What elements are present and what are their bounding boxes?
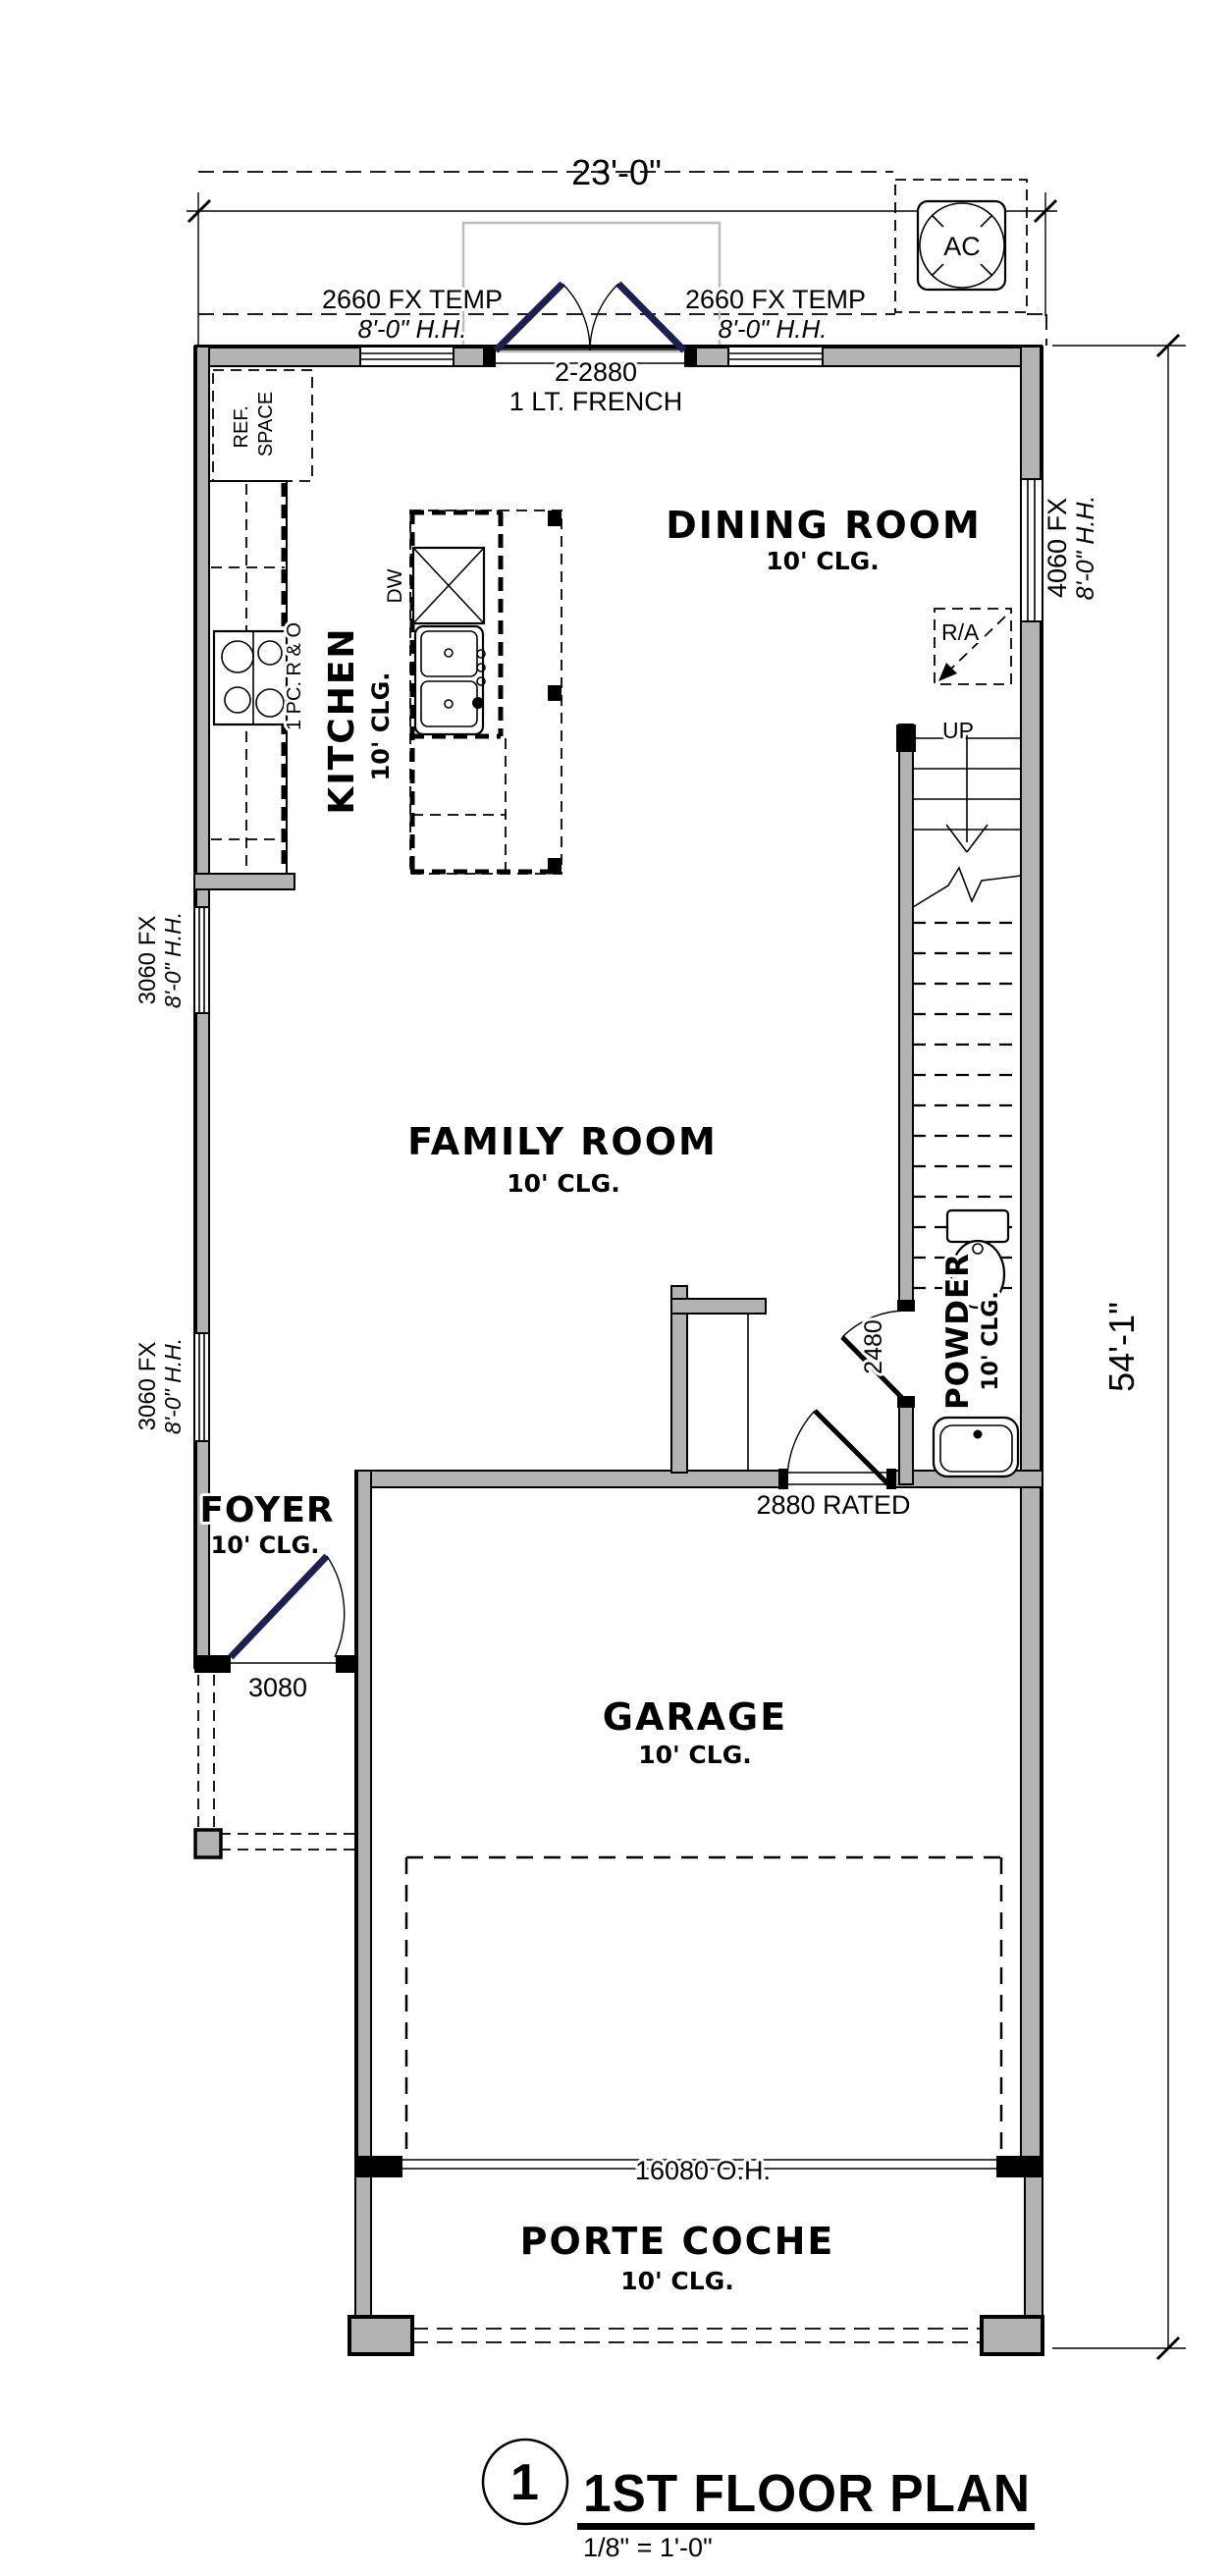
stairs (913, 726, 1021, 1288)
window-left-upper-3060 (194, 907, 209, 1013)
wall-porte-left (355, 2175, 371, 2319)
callout-french-door-type: 1 LT. FRENCH (509, 387, 683, 416)
dimension-right: 54'-1" (1052, 335, 1186, 2359)
callout-window-left-upper: 3060 FX (134, 916, 161, 1005)
wall-porte-right (1025, 2175, 1043, 2319)
wall-niche-top (671, 1299, 766, 1314)
stair-break-line (913, 868, 1021, 907)
callout-french-door-size: 2-2880 (555, 357, 637, 387)
front-door (231, 1556, 345, 1657)
sheet-number: 1 (510, 2454, 540, 2511)
wall-right (1021, 347, 1043, 479)
window-top-right (728, 347, 823, 366)
callout-window-left-upper-head: 8'-0" H.H. (160, 912, 186, 1008)
garage-door-jamb (886, 1469, 896, 1489)
front-door-jamb (336, 1655, 356, 1673)
garage-ceiling-dashed (406, 1857, 1001, 2156)
ref-space-line1: REF. (231, 405, 252, 448)
callout-front-door: 3080 (248, 1673, 307, 1702)
return-air-arrow (938, 663, 957, 681)
dishwasher-label: DW (384, 568, 406, 603)
porch-post (195, 1830, 221, 1857)
room-label-powder: POWDER (940, 1253, 976, 1410)
room-clg-garage: 10' CLG. (638, 1741, 751, 1769)
doors (231, 284, 906, 1657)
porte-coche-open-edge (349, 2317, 1043, 2354)
floor-plan-drawing: 23'-0" 54'-1" AC (0, 0, 1230, 2576)
dishwasher-icon (413, 548, 484, 623)
callout-window-left-lower: 3060 FX (134, 1342, 161, 1431)
ac-label: AC (943, 232, 981, 261)
callout-window-top-right: 2660 FX TEMP (685, 285, 866, 314)
front-door-jamb (194, 1655, 231, 1673)
wall-top (201, 347, 360, 366)
callout-overhead-door: 16080 O.H. (635, 2156, 771, 2185)
island-post (548, 510, 562, 526)
room-clg-family: 10' CLG. (507, 1169, 619, 1198)
french-doors (496, 284, 684, 350)
ref-space-label: REF. SPACE (231, 392, 277, 456)
return-air-label: R/A (941, 619, 980, 645)
range-label: 1 PC. R & O (284, 622, 305, 730)
sheet-title: 1ST FLOOR PLAN (583, 2464, 1031, 2523)
wall-top (823, 347, 1043, 366)
wall-right (1021, 621, 1043, 2175)
room-clg-kitchen: 10' CLG. (367, 672, 395, 781)
stairs-up-label: UP (942, 718, 974, 743)
powder-sink-icon (934, 1418, 1018, 1476)
island-post (548, 858, 562, 874)
powder-door-jamb (897, 1300, 915, 1312)
room-clg-porte-coche: 10' CLG. (620, 2267, 733, 2295)
overall-depth-dim: 54'-1" (1101, 1302, 1142, 1392)
callout-window-right: 4060 FX (1043, 498, 1072, 598)
room-clg-dining: 10' CLG. (766, 547, 879, 575)
room-label-garage: GARAGE (603, 1695, 787, 1739)
callout-window-top-right-head: 8'-0" H.H. (719, 314, 828, 344)
room-clg-foyer: 10' CLG. (211, 1531, 320, 1559)
porte-post (982, 2317, 1043, 2354)
kitchen-sink-icon (415, 626, 485, 734)
window-right-4060 (1021, 479, 1043, 621)
wall-top (696, 347, 728, 366)
porte-post (349, 2317, 412, 2354)
wall-powder-left (899, 1398, 913, 1484)
room-label-dining: DINING ROOM (666, 504, 982, 547)
room-label-porte-coche: PORTE COCHE (520, 2220, 835, 2263)
callout-window-top-left-head: 8'-0" H.H. (358, 314, 467, 344)
callout-garage-entry-door: 2880 RATED (756, 1490, 910, 1520)
room-label-kitchen: KITCHEN (322, 626, 362, 814)
range-icon (214, 631, 287, 724)
callout-powder-door: 2480 (860, 1319, 887, 1374)
wall-top (454, 347, 484, 366)
ref-space-line2: SPACE (255, 392, 277, 456)
kitchen-island (410, 510, 562, 874)
room-label-foyer: FOYER (199, 1490, 334, 1530)
callout-window-left-lower-head: 8'-0" H.H. (160, 1338, 186, 1434)
room-label-family: FAMILY ROOM (407, 1120, 718, 1163)
ac-unit: AC (895, 180, 1027, 312)
title-underline (577, 2523, 1035, 2530)
wall-kitchen-stub (194, 874, 294, 889)
wall-garage-top (355, 1471, 785, 1487)
callout-window-right-head: 8'-0" H.H. (1072, 496, 1099, 601)
callout-window-top-left: 2660 FX TEMP (322, 285, 503, 314)
window-left-lower-3060 (194, 1333, 209, 1441)
wall-stair-left (899, 724, 913, 1308)
island-post (548, 685, 562, 701)
window-top-left (360, 347, 454, 366)
title-block: 1 1ST FLOOR PLAN 1/8" = 1'-0" (483, 2440, 1035, 2562)
sheet-scale: 1/8" = 1'-0" (583, 2533, 713, 2562)
room-clg-powder: 10' CLG. (979, 1291, 1003, 1391)
